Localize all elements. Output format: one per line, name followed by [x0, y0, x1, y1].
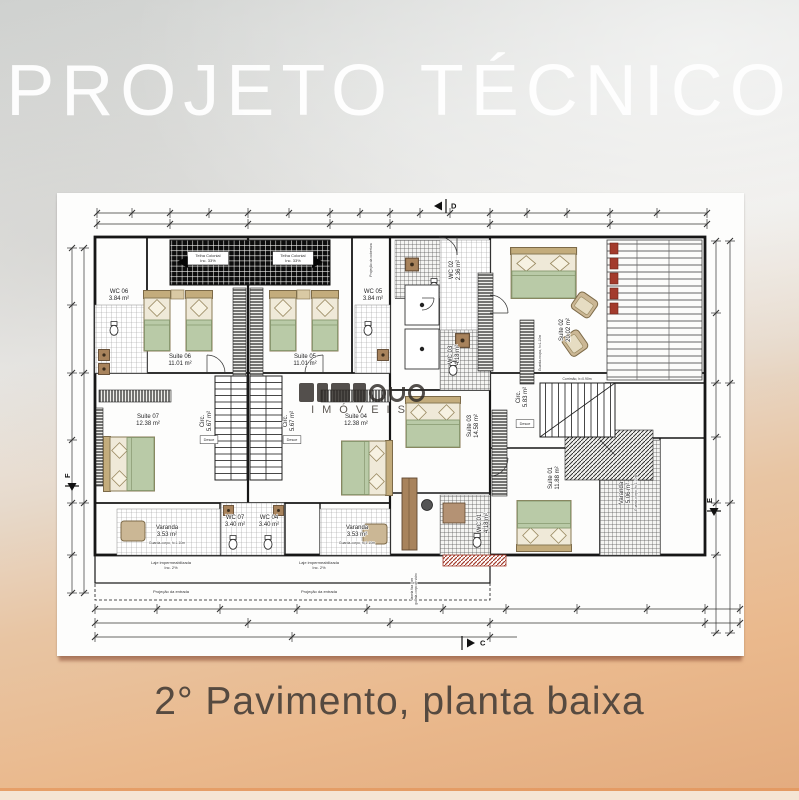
section-marker: F	[63, 473, 79, 491]
svg-text:Desce: Desce	[204, 438, 215, 442]
annotation: Janela fixa comguarda-corpo de vidro	[410, 573, 418, 604]
poster-background: PROJETO TÉCNICO	[0, 0, 799, 800]
room-label: WC 063.84 m²	[109, 289, 129, 302]
annotation: Guarda-corpo, h=1.10m	[634, 475, 638, 511]
room-label: WC 073.40 m²	[225, 515, 245, 528]
svg-text:Laje impermeabilizadaInc. 2%: Laje impermeabilizadaInc. 2%	[151, 560, 192, 570]
room-label: Suite 0611.01 m²	[168, 354, 191, 367]
room-label: WC 053.84 m²	[363, 289, 383, 302]
annotation: Desce	[283, 436, 301, 444]
poster-title: PROJETO TÉCNICO	[0, 50, 799, 132]
wood-deck	[607, 240, 702, 380]
room-label: Varanda3.53 m²	[346, 525, 369, 538]
section-marker: D	[434, 199, 457, 213]
annotation: Desce	[516, 420, 534, 428]
room-label: Suite 0412.38 m²	[344, 414, 368, 427]
room-label: Suite 0314.58 m²	[467, 414, 480, 438]
room-label: Suite 0511.01 m²	[293, 354, 316, 367]
svg-text:E: E	[705, 498, 714, 503]
room-label: Circ.5.83 m²	[516, 387, 529, 407]
room-label: WC 022.36 m²	[449, 260, 462, 280]
poster-caption: 2° Pavimento, planta baixa	[0, 680, 799, 724]
annotation: Guarda-corpo, h=1.10m	[339, 541, 375, 545]
svg-text:Guarda-roupa, h=1.10m: Guarda-roupa, h=1.10m	[538, 335, 542, 371]
annotation: Desce	[200, 436, 218, 444]
floorplan-paper: WC 063.84 m²Suite 0611.01 m²Suite 0511.0…	[57, 193, 744, 656]
annotation: Projeção da entrada	[301, 589, 338, 594]
bottom-strip	[0, 791, 799, 800]
annotation: Projeção da entrada	[153, 589, 190, 594]
annotation: Laje impermeabilizadaInc. 2%	[151, 560, 192, 570]
svg-text:Laje impermeabilizadaInc. 2%: Laje impermeabilizadaInc. 2%	[299, 560, 340, 570]
annotation: Guarda-corpo, h=1.10m	[149, 541, 185, 545]
svg-text:Corrimão, h=0.90m: Corrimão, h=0.90m	[562, 377, 591, 381]
svg-text:Projeção da entrada: Projeção da entrada	[153, 589, 190, 594]
svg-text:Janela fixa comguarda-corpo de: Janela fixa comguarda-corpo de vidro	[410, 573, 418, 604]
svg-text:Projeção da cobertura: Projeção da cobertura	[369, 243, 373, 276]
room-label: WC 034.18 m²	[448, 345, 461, 365]
room-label: Varanda5.06 m²	[619, 481, 632, 504]
svg-text:Desce: Desce	[520, 422, 531, 426]
svg-text:Guarda-corpo, h=1.10m: Guarda-corpo, h=1.10m	[339, 541, 375, 545]
room-label: Suite 0111.88 m²	[548, 466, 561, 489]
room-label: Circ.5.67 m²	[283, 411, 296, 431]
room-label: WC 043.40 m²	[259, 515, 279, 528]
svg-text:F: F	[63, 473, 72, 478]
room-label: WC 014.18 m²	[477, 513, 490, 533]
svg-text:Desce: Desce	[287, 438, 298, 442]
room-label: Circ.5.67 m²	[200, 411, 213, 431]
annotation: Corrimão, h=0.90m	[562, 377, 591, 381]
annotation: Laje impermeabilizadaInc. 2%	[299, 560, 340, 570]
section-marker: C	[462, 636, 486, 650]
entry-red-strip	[443, 555, 506, 566]
svg-text:Guarda-corpo, h=1.10m: Guarda-corpo, h=1.10m	[149, 541, 185, 545]
svg-text:Projeção da entrada: Projeção da entrada	[301, 589, 338, 594]
annotation: Telha ColonialInc. 33%	[188, 252, 229, 265]
annotation: Projeção da cobertura	[369, 243, 373, 276]
room-label: Varanda3.53 m²	[156, 525, 179, 538]
annotation: Telha ColonialInc. 33%	[273, 252, 314, 265]
svg-text:D: D	[451, 202, 457, 211]
room-label: Suite 0712.38 m²	[136, 414, 160, 427]
svg-text:Guarda-corpo, h=1.10m: Guarda-corpo, h=1.10m	[634, 475, 638, 511]
room-label: Suite 0220.02 m²	[559, 318, 572, 342]
floorplan-drawing: WC 063.84 m²Suite 0611.01 m²Suite 0511.0…	[57, 193, 744, 656]
annotation: Guarda-roupa, h=1.10m	[538, 335, 542, 371]
svg-text:C: C	[480, 639, 486, 648]
